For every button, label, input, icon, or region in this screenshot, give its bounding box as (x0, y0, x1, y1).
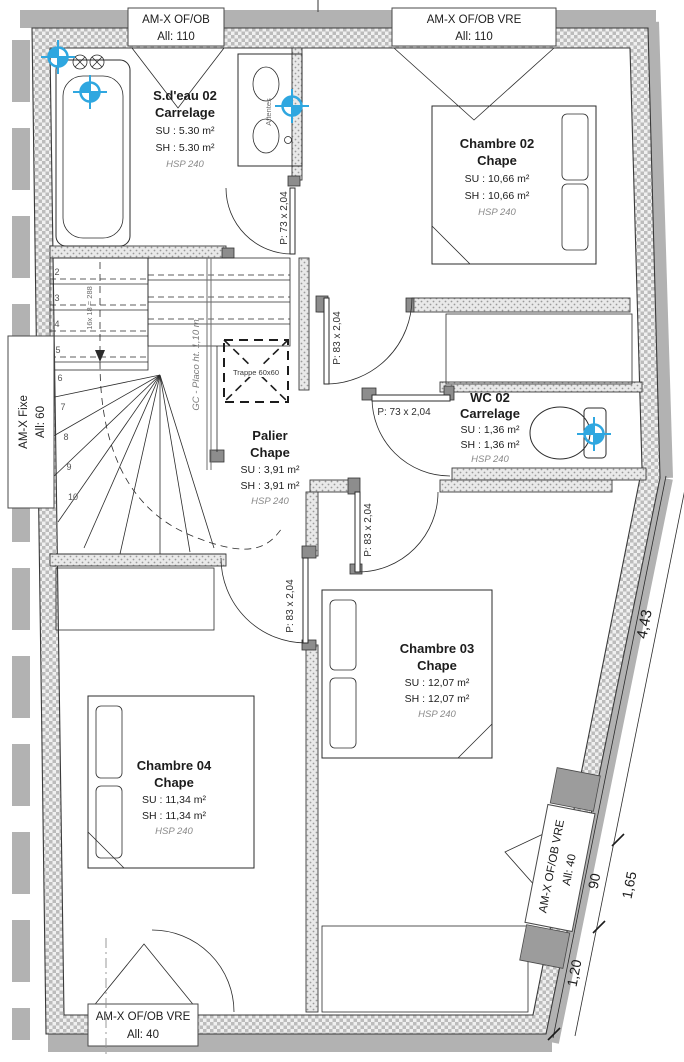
shutter-box (520, 925, 570, 969)
room-su: SU : 12,07 m² (405, 677, 470, 689)
window-label-line2: All: 110 (455, 31, 493, 43)
pillow (330, 678, 356, 748)
room-sh: SH : 5.30 m² (156, 142, 215, 154)
dimension-tick (612, 834, 624, 846)
wall-hall-left (299, 258, 309, 390)
stair-step-number: 7 (60, 402, 65, 412)
trappe-label: Trappe 60x60 (233, 368, 279, 377)
room-label-chambre04: Chambre 04 Chape SU : 11,34 m² SH : 11,3… (137, 758, 212, 837)
pillow (330, 600, 356, 670)
bathtub (56, 60, 130, 246)
room-name: Chambre 03 (400, 641, 474, 656)
wall-chambre03-top (440, 480, 612, 492)
door-label-sdeau: P: 73 x 2,04 (279, 191, 290, 245)
room-finish: Carrelage (155, 105, 215, 120)
window-arc-bottom (152, 930, 234, 1012)
room-su: SU : 1,36 m² (461, 424, 520, 436)
room-hsp: HSP 240 (155, 826, 193, 837)
window-label-bottom: AM-X OF/OB VRE All: 40 (88, 1004, 198, 1046)
bed-chambre-03 (322, 590, 492, 758)
shutter-box (550, 768, 600, 812)
dimension-line-segments (553, 476, 666, 1038)
room-su: SU : 11,34 m² (142, 794, 206, 806)
position-target-icon (73, 75, 107, 109)
room-su: SU : 5.30 m² (156, 125, 215, 137)
bed-fold-line (88, 832, 124, 868)
closet-hatch-top-right (446, 314, 632, 384)
jamb (288, 176, 300, 186)
jamb (302, 546, 316, 558)
room-finish: Chape (417, 658, 457, 673)
attentes-label: Attentes (264, 98, 273, 126)
stair-step-numbers: 2 3 4 5 6 7 8 9 10 (54, 267, 78, 502)
door-label-chambre04: P: 83 x 2,04 (285, 579, 296, 633)
room-label-sdeau02: S.d'eau 02 Carrelage SU : 5.30 m² SH : 5… (153, 88, 217, 170)
room-sh: SH : 12,07 m² (405, 693, 470, 705)
closet-hatch-chambre04 (56, 568, 214, 630)
wall-separator-lower (306, 645, 318, 1012)
door-leaf-chambre03 (355, 492, 360, 572)
stair-step-number: 2 (54, 267, 59, 277)
bed-chambre-02 (432, 106, 596, 264)
window-label-line1: AM-X Fixe (18, 395, 30, 449)
sink-faucet-icon (285, 137, 292, 144)
stair-step-number: 3 (54, 293, 59, 303)
room-sh: SH : 3,91 m² (241, 480, 300, 492)
guard-note: GC - Placo ht. 1,10 m (191, 319, 202, 410)
room-labels: S.d'eau 02 Carrelage SU : 5.30 m² SH : 5… (137, 88, 534, 837)
wall-sdeau-bottom (50, 246, 226, 258)
stair-rise-note: 16x 18 = 288 (85, 286, 94, 330)
room-name: WC 02 (470, 390, 510, 405)
window-label-line2: All: 110 (157, 31, 195, 43)
bed-fold-line (432, 226, 470, 264)
door-leaf-wc (372, 395, 450, 401)
room-sh: SH : 11,34 m² (142, 810, 206, 822)
door-leaf-chambre04 (303, 558, 308, 643)
room-hsp: HSP 240 (166, 159, 204, 170)
room-sh: SH : 10,66 m² (465, 190, 530, 202)
position-target-icon (275, 89, 309, 123)
door-label-wc: P: 73 x 2,04 (377, 407, 431, 418)
pillow (96, 786, 122, 858)
jamb (222, 248, 234, 258)
stair-step-number: 5 (55, 345, 60, 355)
room-su: SU : 3,91 m² (241, 464, 300, 476)
room-finish: Chape (154, 775, 194, 790)
floor-plan-drawing: 2 3 4 5 6 7 8 9 10 16x 18 = 288 GC - Pla… (0, 0, 684, 1062)
room-name: Chambre 02 (460, 136, 534, 151)
stair-step-number: 9 (66, 462, 71, 472)
roof-band-diagonal (550, 478, 664, 1042)
window-label-top-right: AM-X OF/OB VRE All: 110 (392, 8, 556, 46)
room-hsp: HSP 240 (251, 496, 289, 507)
room-hsp: HSP 240 (471, 454, 509, 465)
room-label-chambre03: Chambre 03 Chape SU : 12,07 m² SH : 12,0… (400, 641, 474, 720)
room-hsp: HSP 240 (478, 207, 516, 218)
stair-step-number: 10 (68, 492, 78, 502)
room-name: S.d'eau 02 (153, 88, 217, 103)
stairs: 2 3 4 5 6 7 8 9 10 16x 18 = 288 GC - Pla… (50, 258, 290, 554)
wall-wc-bottom (452, 468, 646, 480)
door-leaf-sdeau (290, 188, 295, 254)
room-label-palier: Palier Chape SU : 3,91 m² SH : 3,91 m² H… (241, 428, 300, 507)
pillow (562, 114, 588, 180)
dim-seg-90: 90 (585, 872, 604, 891)
window-label-line1: AM-X OF/OB VRE (427, 14, 522, 26)
room-label-chambre02: Chambre 02 Chape SU : 10,66 m² SH : 10,6… (460, 136, 534, 218)
window-swing-top-right (394, 48, 554, 120)
wall-chambre02-bottom (412, 298, 630, 312)
stair-step-number: 6 (57, 373, 62, 383)
window-label-line2: All: 60 (35, 406, 47, 438)
trappe-hatch-box: Trappe 60x60 (224, 340, 288, 402)
stair-step-number: 8 (63, 432, 68, 442)
wall-corridor-bottom-left (310, 480, 352, 492)
door-label-chambre02: P: 83 x 2,04 (332, 311, 343, 365)
wall-chambre04-top (50, 554, 226, 566)
room-sh: SH : 1,36 m² (461, 439, 520, 451)
room-name: Chambre 04 (137, 758, 212, 773)
room-name: Palier (252, 428, 287, 443)
room-hsp: HSP 240 (418, 709, 456, 720)
walk-line-arrow (95, 350, 105, 362)
dim-seg-165: 1,65 (619, 870, 640, 900)
floor-plan: 2 3 4 5 6 7 8 9 10 16x 18 = 288 GC - Pla… (0, 0, 684, 1062)
window-label-line2: All: 40 (127, 1029, 159, 1041)
pillow (96, 706, 122, 778)
sink-basin (253, 67, 279, 101)
jamb (406, 298, 414, 312)
room-finish: Carrelage (460, 406, 520, 421)
room-su: SU : 10,66 m² (465, 173, 530, 185)
room-label-wc02: WC 02 Carrelage SU : 1,36 m² SH : 1,36 m… (460, 390, 520, 465)
room-finish: Chape (250, 445, 290, 460)
window-label-left: AM-X Fixe All: 60 (8, 336, 54, 508)
faucet-cross-marks (75, 57, 102, 67)
door-leaf-chambre02 (324, 298, 329, 384)
window-swing-bottom (92, 944, 196, 1008)
door-label-chambre03: P: 83 x 2,04 (363, 503, 374, 557)
window-label-line1: AM-X OF/OB VRE (96, 1011, 191, 1023)
window-label-line1: AM-X OF/OB (142, 14, 210, 26)
closet-hatch-chambre03 (322, 926, 528, 1012)
window-label-top-left: AM-X OF/OB All: 110 (128, 8, 224, 46)
bed-fold-line (458, 724, 492, 758)
room-finish: Chape (477, 153, 517, 168)
dimension-tick (593, 921, 605, 933)
stair-step-number: 4 (54, 319, 59, 329)
pillow (562, 184, 588, 250)
